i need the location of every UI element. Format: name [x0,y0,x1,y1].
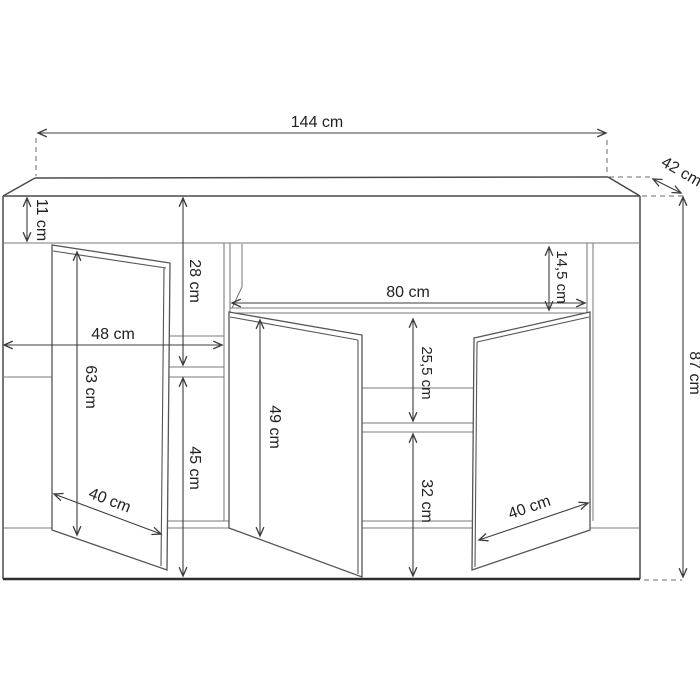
dim-niche-height: 14,5 cm [549,247,570,310]
dim-top-panel: 11 cm [27,198,50,241]
overall-height-label: 87 cm [686,351,700,395]
dim-niche-width: 80 cm [232,284,585,303]
center-door-open [229,312,362,577]
dim-center-lower-gap: 32 cm [413,434,435,576]
left-lower-height-label: 45 cm [186,446,203,490]
niche-width-label: 80 cm [386,284,430,301]
top-panel-height-label: 11 cm [33,199,50,241]
technical-drawing-page: 144 cm 42 cm 87 cm 11 cm 28 cm 45 cm 48 … [0,0,700,700]
left-upper-height-label: 28 cm [186,259,203,303]
left-door-open [52,245,170,570]
dim-left-upper: 28 cm [183,198,203,365]
center-upper-gap-label: 25,5 cm [418,346,435,399]
overall-width-label: 144 cm [291,114,343,131]
dim-center-upper-gap: 25,5 cm [413,319,435,421]
niche-height-label: 14,5 cm [553,250,570,303]
left-section-width-label: 48 cm [91,326,135,343]
dim-left-lower: 45 cm [183,378,203,576]
sideboard-dimension-diagram: 144 cm 42 cm 87 cm 11 cm 28 cm 45 cm 48 … [0,0,700,700]
cabinet-top-face [3,177,640,196]
dim-overall-height: 87 cm [644,197,700,580]
right-door-open [472,312,590,570]
left-door-height-label: 63 cm [82,365,99,409]
center-lower-gap-label: 32 cm [418,479,435,523]
dim-overall-depth: 42 cm [609,154,700,196]
dim-overall-width: 144 cm [36,114,607,176]
center-door-height-label: 49 cm [266,405,283,449]
